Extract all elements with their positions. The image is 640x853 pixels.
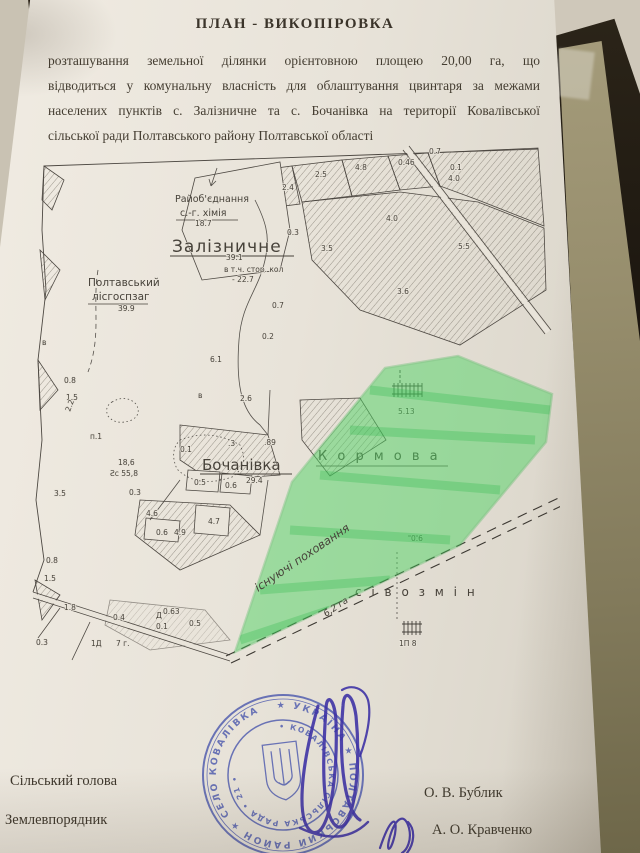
trident-emblem [262,741,303,802]
round-stamp: ★ УКРАЇНА ★ ПОЛТАВСЬКИЙ РАЙОН ★ СЕЛО КОВ… [194,686,372,853]
tape-glint [553,48,595,100]
role-zemlevporyadnyk: Землевпорядник [5,812,107,829]
plan-document-page: ПЛАН - ВИКОПІРОВКА розташування земельно… [0,0,640,853]
stamp-and-signatures: ★ УКРАЇНА ★ ПОЛТАВСЬКИЙ РАЙОН ★ СЕЛО КОВ… [0,0,640,853]
signature-zemlevporyadnyk [380,819,413,853]
photographed-document: { "document": { "title": "ПЛАН - ВИКОПІР… [0,0,640,853]
role-silskyi-holova: Сільський голова [10,773,117,790]
name-bublyk: О. В. Бублик [424,785,503,802]
name-kravchenko: А. О. Кравченко [432,822,532,839]
